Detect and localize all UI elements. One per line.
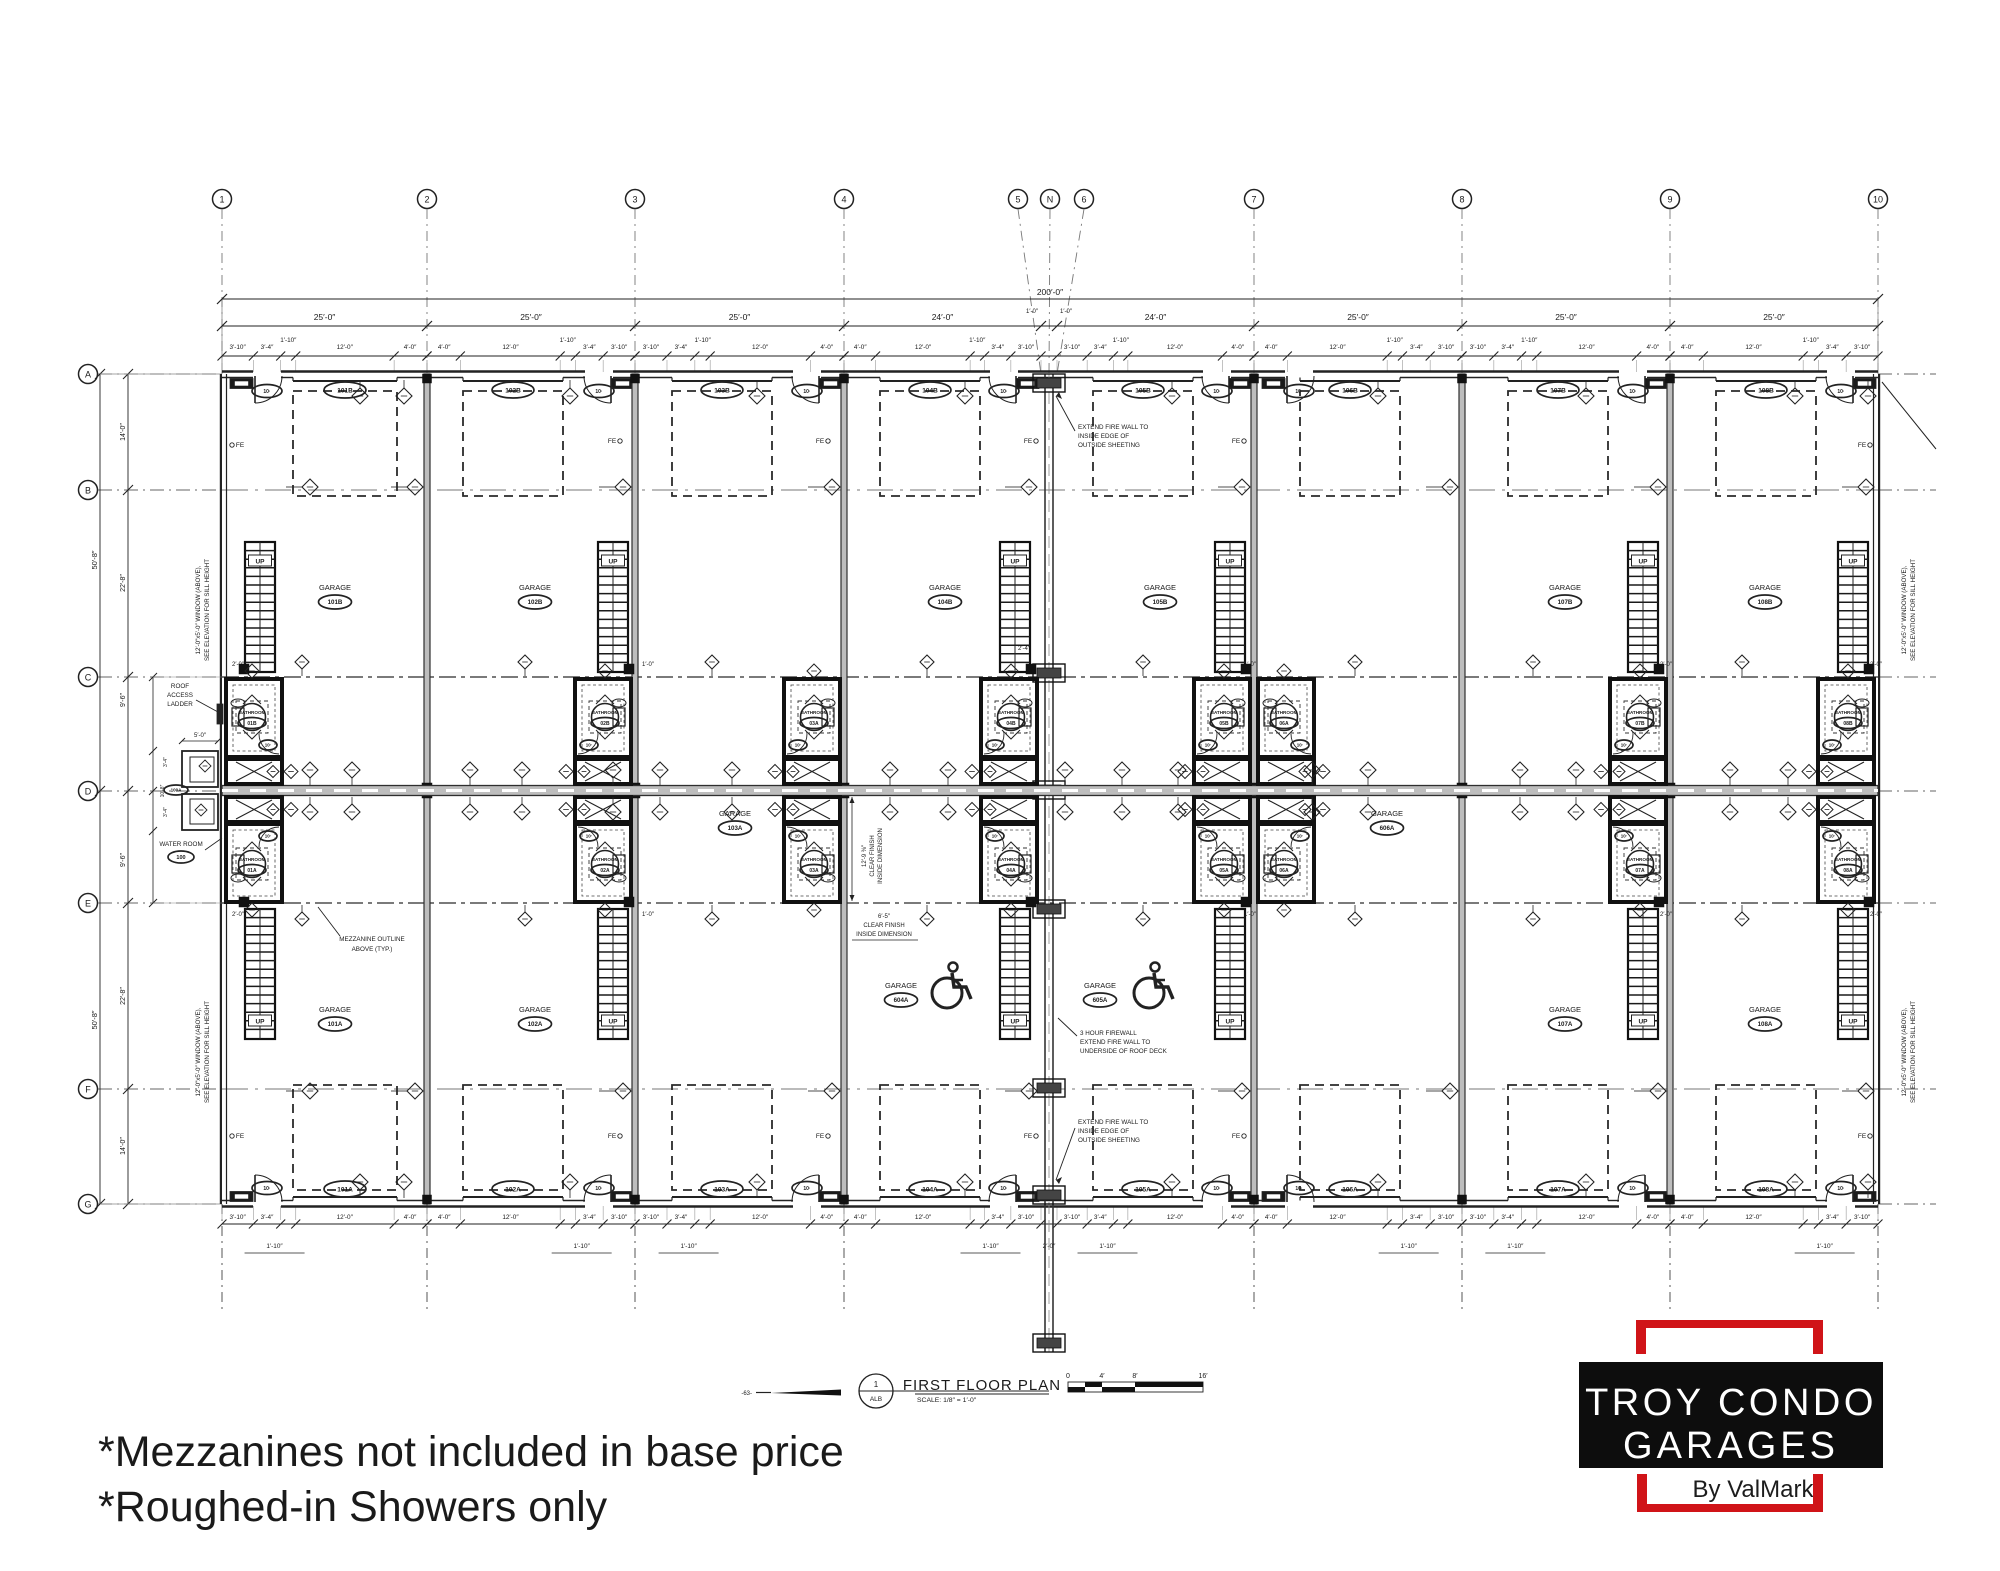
svg-text:GARAGE: GARAGE: [1749, 583, 1781, 592]
svg-text:12′-0″: 12′-0″: [1745, 344, 1762, 351]
svg-text:4′-0″: 4′-0″: [854, 1214, 867, 1221]
svg-text:FE: FE: [1024, 1133, 1033, 1140]
svg-text:24′-0″: 24′-0″: [932, 312, 954, 322]
svg-text:102B: 102B: [505, 387, 521, 394]
svg-text:9′-6″: 9′-6″: [120, 693, 127, 707]
svg-text:FIRST FLOOR PLAN: FIRST FLOOR PLAN: [903, 1377, 1061, 1394]
svg-text:*Roughed-in Showers only: *Roughed-in Showers only: [98, 1483, 608, 1531]
svg-text:SEE ELEVATION FOR SILL HEIGHT: SEE ELEVATION FOR SILL HEIGHT: [1910, 559, 1917, 661]
svg-text:103A: 103A: [714, 1186, 730, 1193]
svg-text:4′-0″: 4′-0″: [854, 344, 867, 351]
svg-text:N: N: [1047, 195, 1054, 205]
svg-text:ROOF: ROOF: [171, 683, 189, 690]
svg-text:4′-0″: 4′-0″: [1231, 1214, 1244, 1221]
svg-text:BATHROOM: BATHROOM: [592, 857, 619, 862]
svg-text:12′-0″: 12′-0″: [752, 344, 769, 351]
svg-text:12′-0″: 12′-0″: [1745, 1214, 1762, 1221]
svg-text:SEE ELEVATION FOR SILL HEIGHT: SEE ELEVATION FOR SILL HEIGHT: [204, 1001, 211, 1103]
svg-text:ABOVE (TYP.): ABOVE (TYP.): [352, 946, 393, 953]
svg-text:UP: UP: [255, 559, 265, 566]
svg-text:3′-4″: 3′-4″: [1410, 1214, 1423, 1221]
svg-text:10·: 10·: [992, 743, 999, 748]
svg-text:1′-10″: 1′-10″: [680, 1243, 697, 1250]
svg-text:GARAGE: GARAGE: [519, 583, 551, 592]
svg-text:106B: 106B: [1342, 387, 1358, 394]
svg-text:4′-0″: 4′-0″: [1646, 1214, 1659, 1221]
svg-text:25′-0″: 25′-0″: [1347, 312, 1369, 322]
svg-text:12′-0″: 12′-0″: [752, 1214, 769, 1221]
svg-text:BATHROOM: BATHROOM: [998, 710, 1025, 715]
svg-text:16′: 16′: [1198, 1373, 1208, 1380]
svg-text:10·: 10·: [595, 389, 603, 395]
svg-text:12′-0″: 12′-0″: [337, 344, 354, 351]
svg-text:606A: 606A: [1380, 825, 1395, 832]
svg-text:*Mezzanines not included in ba: *Mezzanines not included in base price: [98, 1428, 844, 1476]
svg-text:BATHROOM: BATHROOM: [1627, 710, 1654, 715]
svg-text:25′-0″: 25′-0″: [729, 312, 751, 322]
svg-text:3′-4″: 3′-4″: [261, 1214, 274, 1221]
svg-text:1′-10″: 1′-10″: [560, 337, 577, 344]
svg-text:OUTSIDE SHEETING: OUTSIDE SHEETING: [1078, 442, 1140, 449]
svg-text:10′-8″: 10′-8″: [160, 784, 166, 797]
svg-text:105B: 105B: [1153, 599, 1168, 606]
svg-text:103A: 103A: [728, 825, 743, 832]
svg-text:By ValMark: By ValMark: [1693, 1476, 1815, 1503]
svg-text:CLEAR FINISH: CLEAR FINISH: [863, 923, 904, 929]
svg-text:INSIDE EDGE OF: INSIDE EDGE OF: [1078, 433, 1129, 440]
svg-text:101B: 101B: [337, 387, 353, 394]
svg-text:3′-4″: 3′-4″: [163, 757, 169, 767]
svg-text:3′-10″: 3′-10″: [1438, 344, 1455, 351]
svg-text:22′-8″: 22′-8″: [120, 574, 127, 592]
svg-text:4′-0″: 4′-0″: [438, 1214, 451, 1221]
svg-text:12′-0″: 12′-0″: [915, 1214, 932, 1221]
svg-text:1′-10″: 1′-10″: [1507, 1243, 1524, 1250]
svg-text:14′-0″: 14′-0″: [120, 1137, 127, 1155]
svg-text:10·: 10·: [803, 1186, 811, 1192]
svg-text:GARAGE: GARAGE: [885, 981, 917, 990]
svg-text:12′-0″x5′-0″ WINDOW (ABOVE),: 12′-0″x5′-0″ WINDOW (ABOVE),: [195, 565, 202, 654]
svg-text:E: E: [85, 899, 91, 909]
svg-text:UP: UP: [1638, 1019, 1648, 1026]
svg-text:10·: 10·: [263, 389, 271, 395]
svg-text:BATHROOM: BATHROOM: [1835, 857, 1862, 862]
svg-text:INSIDE DIMENSION: INSIDE DIMENSION: [878, 828, 884, 884]
svg-text:FE: FE: [236, 442, 245, 449]
svg-text:FE: FE: [1858, 1133, 1867, 1140]
svg-text:1: 1: [219, 195, 224, 205]
svg-text:12′-9 ⅜″: 12′-9 ⅜″: [862, 844, 868, 867]
svg-text:4′-0″: 4′-0″: [438, 344, 451, 351]
svg-text:FE: FE: [236, 1133, 245, 1140]
svg-text:UP: UP: [1010, 559, 1020, 566]
svg-text:107A: 107A: [1558, 1021, 1573, 1028]
svg-text:3′-4″: 3′-4″: [1094, 1214, 1107, 1221]
svg-text:10·: 10·: [1000, 389, 1008, 395]
svg-text:107B: 107B: [1558, 599, 1573, 606]
svg-text:10·: 10·: [263, 1186, 271, 1192]
svg-text:25′-0″: 25′-0″: [1555, 312, 1577, 322]
svg-text:EXTEND FIRE WALL TO: EXTEND FIRE WALL TO: [1080, 1039, 1150, 1046]
svg-text:03A: 03A: [809, 868, 819, 874]
svg-text:10·: 10·: [1295, 389, 1303, 395]
svg-text:3′-10″: 3′-10″: [230, 344, 247, 351]
svg-text:10·: 10·: [1205, 743, 1212, 748]
svg-text:6: 6: [1081, 195, 1086, 205]
svg-text:3′-4″: 3′-4″: [991, 1214, 1004, 1221]
svg-text:UNDERSIDE OF ROOF DECK: UNDERSIDE OF ROOF DECK: [1080, 1048, 1168, 1055]
svg-text:107A: 107A: [1550, 1186, 1566, 1193]
svg-text:9: 9: [1667, 195, 1672, 205]
svg-text:FE: FE: [608, 1133, 617, 1140]
svg-text:05B: 05B: [1219, 721, 1229, 727]
svg-text:FE: FE: [1232, 1133, 1241, 1140]
svg-text:1′-10″: 1′-10″: [982, 1243, 999, 1250]
svg-text:108A: 108A: [1758, 1186, 1774, 1193]
svg-text:104A: 104A: [922, 1186, 938, 1193]
svg-text:50′-8″: 50′-8″: [90, 550, 99, 569]
svg-text:4′: 4′: [1099, 1373, 1105, 1380]
svg-text:GARAGE: GARAGE: [519, 1005, 551, 1014]
svg-text:FE: FE: [816, 438, 825, 445]
svg-text:1′-10″: 1′-10″: [694, 337, 711, 344]
svg-text:108A: 108A: [1758, 1021, 1773, 1028]
svg-text:BATHROOM: BATHROOM: [239, 857, 266, 862]
svg-text:1′-0″: 1′-0″: [1244, 912, 1257, 918]
svg-text:10·: 10·: [795, 834, 802, 839]
svg-text:GARAGE: GARAGE: [319, 583, 351, 592]
svg-text:7: 7: [1251, 195, 1256, 205]
svg-text:100A: 100A: [171, 788, 183, 793]
svg-text:3′-4″: 3′-4″: [675, 1214, 688, 1221]
svg-text:101A: 101A: [337, 1186, 353, 1193]
svg-text:FE: FE: [1858, 442, 1867, 449]
svg-text:4: 4: [841, 195, 846, 205]
svg-text:3′-10″: 3′-10″: [1854, 1214, 1871, 1221]
svg-text:3′-4″: 3′-4″: [583, 1214, 596, 1221]
svg-text:10·: 10·: [992, 834, 999, 839]
svg-text:3′-4″: 3′-4″: [1501, 344, 1514, 351]
svg-text:BATHROOM: BATHROOM: [1627, 857, 1654, 862]
svg-text:1′-10″: 1′-10″: [1387, 337, 1404, 344]
svg-text:104B: 104B: [938, 599, 953, 606]
svg-text:BATHROOM: BATHROOM: [801, 710, 828, 715]
svg-text:BATHROOM: BATHROOM: [1271, 710, 1298, 715]
svg-text:07A: 07A: [1635, 868, 1645, 874]
svg-text:3′-10″: 3′-10″: [1854, 344, 1871, 351]
svg-text:10·: 10·: [1621, 743, 1628, 748]
svg-text:4′-0″: 4′-0″: [1646, 344, 1659, 351]
svg-text:102B: 102B: [528, 599, 543, 606]
svg-text:9′-6″: 9′-6″: [120, 853, 127, 867]
svg-text:10·: 10·: [795, 743, 802, 748]
svg-text:UP: UP: [1848, 559, 1858, 566]
svg-text:101A: 101A: [328, 1021, 343, 1028]
svg-text:04A: 04A: [1006, 868, 1016, 874]
svg-text:4′-0″: 4′-0″: [1681, 1214, 1694, 1221]
svg-text:12′-0″x5′-0″ WINDOW (ABOVE),: 12′-0″x5′-0″ WINDOW (ABOVE),: [195, 1007, 202, 1096]
svg-text:05A: 05A: [1219, 868, 1229, 874]
svg-text:01B: 01B: [247, 721, 257, 727]
svg-text:07B: 07B: [1635, 721, 1645, 727]
svg-text:10·: 10·: [1837, 1186, 1845, 1192]
svg-text:06A: 06A: [1279, 721, 1289, 727]
svg-text:3′-4″: 3′-4″: [991, 344, 1004, 351]
svg-text:BATHROOM: BATHROOM: [239, 710, 266, 715]
svg-text:10·: 10·: [1000, 1186, 1008, 1192]
svg-text:BATHROOM: BATHROOM: [592, 710, 619, 715]
svg-text:10·: 10·: [265, 743, 272, 748]
svg-text:25′-0″: 25′-0″: [314, 312, 336, 322]
svg-text:CLEAR FINISH: CLEAR FINISH: [870, 835, 876, 876]
svg-text:0: 0: [1066, 1373, 1070, 1380]
svg-text:10·: 10·: [1629, 1186, 1637, 1192]
svg-text:3′-10″: 3′-10″: [1470, 344, 1487, 351]
svg-text:10·: 10·: [1829, 834, 1836, 839]
svg-text:10·: 10·: [1213, 1186, 1221, 1192]
svg-text:2: 2: [424, 195, 429, 205]
svg-text:25′-0″: 25′-0″: [520, 312, 542, 322]
svg-text:BATHROOM: BATHROOM: [1211, 710, 1238, 715]
svg-text:6′-5″: 6′-5″: [878, 914, 891, 920]
svg-text:10·: 10·: [586, 743, 593, 748]
svg-text:3′-10″: 3′-10″: [230, 1214, 247, 1221]
svg-text:12′-0″: 12′-0″: [1329, 344, 1346, 351]
svg-text:FE: FE: [608, 438, 617, 445]
svg-text:GARAGE: GARAGE: [1144, 583, 1176, 592]
svg-text:2′-0″: 2′-0″: [1660, 912, 1673, 918]
svg-text:12′-0″: 12′-0″: [915, 344, 932, 351]
svg-text:UP: UP: [608, 559, 618, 566]
svg-text:BATHROOM: BATHROOM: [998, 857, 1025, 862]
svg-text:TROY CONDO: TROY CONDO: [1585, 1382, 1877, 1424]
svg-text:10: 10: [1873, 195, 1883, 205]
svg-text:UP: UP: [1225, 559, 1235, 566]
svg-text:10·: 10·: [1295, 1186, 1303, 1192]
svg-text:12′-0″: 12′-0″: [337, 1214, 354, 1221]
svg-text:FE: FE: [1232, 438, 1241, 445]
svg-text:EXTEND FIRE WALL TO: EXTEND FIRE WALL TO: [1078, 424, 1148, 431]
svg-text:UP: UP: [608, 1019, 618, 1026]
svg-text:200′-0″: 200′-0″: [1037, 287, 1063, 297]
svg-text:12′-0″: 12′-0″: [1167, 344, 1184, 351]
svg-text:10·: 10·: [1297, 743, 1304, 748]
svg-text:12′-0″: 12′-0″: [1578, 1214, 1595, 1221]
svg-text:1′-10″: 1′-10″: [1521, 337, 1538, 344]
svg-text:8′: 8′: [1132, 1373, 1138, 1380]
svg-text:107B: 107B: [1550, 387, 1566, 394]
svg-text:08A: 08A: [1843, 868, 1853, 874]
svg-text:4′-0″: 4′-0″: [404, 1214, 417, 1221]
svg-text:LADDER: LADDER: [167, 701, 193, 708]
svg-text:3 HOUR FIREWALL: 3 HOUR FIREWALL: [1080, 1030, 1137, 1037]
svg-text:25′-0″: 25′-0″: [1763, 312, 1785, 322]
svg-text:3′-10″: 3′-10″: [643, 344, 660, 351]
svg-text:105B: 105B: [1135, 387, 1151, 394]
svg-text:C: C: [85, 673, 92, 683]
svg-text:102A: 102A: [505, 1186, 521, 1193]
svg-text:4′-0″: 4′-0″: [820, 344, 833, 351]
svg-text:1′-0″: 1′-0″: [1060, 309, 1073, 315]
svg-text:10·: 10·: [803, 389, 811, 395]
svg-text:1′-10″: 1′-10″: [280, 337, 297, 344]
svg-text:10·: 10·: [1205, 834, 1212, 839]
svg-text:MEZZANINE OUTLINE: MEZZANINE OUTLINE: [339, 936, 404, 943]
svg-text:03A: 03A: [809, 721, 819, 727]
svg-text:12′-0″x5′-0″ WINDOW (ABOVE),: 12′-0″x5′-0″ WINDOW (ABOVE),: [1901, 1007, 1908, 1096]
svg-text:UP: UP: [255, 1019, 265, 1026]
svg-text:GARAGE: GARAGE: [1749, 1005, 1781, 1014]
svg-text:102A: 102A: [528, 1021, 543, 1028]
svg-text:04B: 04B: [1006, 721, 1016, 727]
svg-text:604A: 604A: [894, 997, 909, 1004]
svg-text:4′-0″: 4′-0″: [1231, 344, 1244, 351]
svg-text:GARAGE: GARAGE: [1084, 981, 1116, 990]
svg-text:FE: FE: [1024, 438, 1033, 445]
svg-text:BATHROOM: BATHROOM: [1271, 857, 1298, 862]
svg-text:4′-0″: 4′-0″: [1265, 1214, 1278, 1221]
svg-text:A: A: [85, 370, 91, 380]
svg-text:4′-0″: 4′-0″: [1681, 344, 1694, 351]
svg-text:3′-10″: 3′-10″: [643, 1214, 660, 1221]
svg-text:BATHROOM: BATHROOM: [1835, 710, 1862, 715]
svg-text:2′-0″: 2′-0″: [1870, 912, 1883, 918]
svg-text:1′-10″: 1′-10″: [574, 1243, 591, 1250]
svg-text:GARAGES: GARAGES: [1623, 1425, 1839, 1467]
svg-text:12′-0″: 12′-0″: [1578, 344, 1595, 351]
svg-text:10·: 10·: [586, 834, 593, 839]
svg-text:INSIDE EDGE OF: INSIDE EDGE OF: [1078, 1128, 1129, 1135]
svg-text:3′-4″: 3′-4″: [1094, 344, 1107, 351]
svg-text:8: 8: [1459, 195, 1464, 205]
svg-text:5: 5: [1015, 195, 1020, 205]
svg-text:SCALE: 1/8″ = 1′-0″: SCALE: 1/8″ = 1′-0″: [917, 1397, 977, 1404]
svg-text:3′-4″: 3′-4″: [675, 344, 688, 351]
svg-text:1′-10″: 1′-10″: [969, 337, 986, 344]
svg-text:3′-4″: 3′-4″: [1410, 344, 1423, 351]
svg-text:104B: 104B: [922, 387, 938, 394]
svg-text:1′-10″: 1′-10″: [1099, 1243, 1116, 1250]
svg-text:605A: 605A: [1093, 997, 1108, 1004]
svg-text:01A: 01A: [247, 868, 257, 874]
svg-text:105A: 105A: [1135, 1186, 1151, 1193]
svg-text:1′-10″: 1′-10″: [1113, 337, 1130, 344]
svg-text:10·: 10·: [1621, 834, 1628, 839]
svg-text:10·: 10·: [595, 1186, 603, 1192]
svg-text:1′-10″: 1′-10″: [1401, 1243, 1418, 1250]
svg-text:24′-0″: 24′-0″: [1145, 312, 1167, 322]
svg-text:-63-: -63-: [741, 1391, 752, 1397]
svg-text:12′-0″: 12′-0″: [502, 344, 519, 351]
svg-text:GARAGE: GARAGE: [929, 583, 961, 592]
svg-text:1′-10″: 1′-10″: [1803, 337, 1820, 344]
svg-text:3: 3: [632, 195, 637, 205]
svg-text:INSIDE DIMENSION: INSIDE DIMENSION: [856, 932, 912, 938]
svg-text:4′-0″: 4′-0″: [820, 1214, 833, 1221]
svg-text:UP: UP: [1010, 1019, 1020, 1026]
svg-text:3′-10″: 3′-10″: [1018, 344, 1035, 351]
svg-text:22′-8″: 22′-8″: [120, 987, 127, 1005]
svg-text:3′-4″: 3′-4″: [1826, 344, 1839, 351]
svg-text:UP: UP: [1848, 1019, 1858, 1026]
svg-text:14′-0″: 14′-0″: [120, 423, 127, 441]
svg-text:3′-10″: 3′-10″: [611, 344, 628, 351]
svg-text:1: 1: [874, 1380, 879, 1389]
svg-text:10·: 10·: [1829, 743, 1836, 748]
svg-text:EXTEND FIRE WALL TO: EXTEND FIRE WALL TO: [1078, 1119, 1148, 1126]
svg-text:WATER ROOM: WATER ROOM: [159, 841, 202, 848]
svg-text:108B: 108B: [1758, 387, 1774, 394]
svg-text:02A: 02A: [600, 868, 610, 874]
svg-text:3′-10″: 3′-10″: [1064, 1214, 1081, 1221]
svg-text:12′-0″: 12′-0″: [502, 1214, 519, 1221]
svg-text:3′-10″: 3′-10″: [1018, 1214, 1035, 1221]
svg-text:4′-0″: 4′-0″: [1265, 344, 1278, 351]
svg-text:FE: FE: [816, 1133, 825, 1140]
svg-text:12′-0″: 12′-0″: [1329, 1214, 1346, 1221]
svg-text:10·: 10·: [1629, 389, 1637, 395]
svg-text:GARAGE: GARAGE: [1549, 583, 1581, 592]
svg-text:BATHROOM: BATHROOM: [1211, 857, 1238, 862]
svg-text:10·: 10·: [265, 834, 272, 839]
svg-text:1′-0″: 1′-0″: [642, 662, 655, 668]
svg-text:G: G: [84, 1200, 91, 1210]
svg-text:3′-10″: 3′-10″: [1470, 1214, 1487, 1221]
svg-text:UP: UP: [1638, 559, 1648, 566]
svg-text:3′-4″: 3′-4″: [1501, 1214, 1514, 1221]
svg-text:1′-0″: 1′-0″: [642, 912, 655, 918]
svg-text:D: D: [85, 787, 92, 797]
svg-text:GARAGE: GARAGE: [319, 1005, 351, 1014]
svg-text:5′-0″: 5′-0″: [194, 733, 207, 739]
svg-text:1′-0″: 1′-0″: [1026, 309, 1039, 315]
svg-text:108B: 108B: [1758, 599, 1773, 606]
svg-text:101B: 101B: [328, 599, 343, 606]
svg-text:B: B: [85, 486, 91, 496]
svg-text:3′-4″: 3′-4″: [1826, 1214, 1839, 1221]
svg-text:BATHROOM: BATHROOM: [801, 857, 828, 862]
svg-text:3′-4″: 3′-4″: [261, 344, 274, 351]
svg-text:100: 100: [176, 855, 185, 861]
svg-text:OUTSIDE SHEETING: OUTSIDE SHEETING: [1078, 1137, 1140, 1144]
svg-text:F: F: [85, 1085, 91, 1095]
svg-text:3′-10″: 3′-10″: [1438, 1214, 1455, 1221]
svg-text:3′-4″: 3′-4″: [163, 807, 169, 817]
svg-text:4′-0″: 4′-0″: [404, 344, 417, 351]
svg-text:2′-0″: 2′-0″: [232, 912, 245, 918]
svg-text:10·: 10·: [1837, 389, 1845, 395]
svg-text:12′-0″x5′-0″ WINDOW (ABOVE),: 12′-0″x5′-0″ WINDOW (ABOVE),: [1901, 565, 1908, 654]
svg-text:1′-10″: 1′-10″: [266, 1243, 283, 1250]
svg-text:02B: 02B: [600, 721, 610, 727]
svg-text:106A: 106A: [1342, 1186, 1358, 1193]
svg-text:1′-10″: 1′-10″: [1817, 1243, 1834, 1250]
svg-text:GARAGE: GARAGE: [1549, 1005, 1581, 1014]
svg-text:3′-10″: 3′-10″: [611, 1214, 628, 1221]
svg-text:ACCESS: ACCESS: [167, 692, 193, 699]
svg-text:06A: 06A: [1279, 868, 1289, 874]
svg-text:3′-10″: 3′-10″: [1064, 344, 1081, 351]
svg-text:103B: 103B: [714, 387, 730, 394]
svg-text:10·: 10·: [1213, 389, 1221, 395]
svg-text:UP: UP: [1225, 1019, 1235, 1026]
svg-text:ALB: ALB: [870, 1396, 882, 1403]
svg-text:SEE ELEVATION FOR SILL HEIGHT: SEE ELEVATION FOR SILL HEIGHT: [1910, 1001, 1917, 1103]
svg-text:10·: 10·: [1297, 834, 1304, 839]
svg-text:GARAGE: GARAGE: [1371, 809, 1403, 818]
svg-text:SEE ELEVATION FOR SILL HEIGHT: SEE ELEVATION FOR SILL HEIGHT: [204, 559, 211, 661]
svg-text:50′-8″: 50′-8″: [90, 1010, 99, 1029]
